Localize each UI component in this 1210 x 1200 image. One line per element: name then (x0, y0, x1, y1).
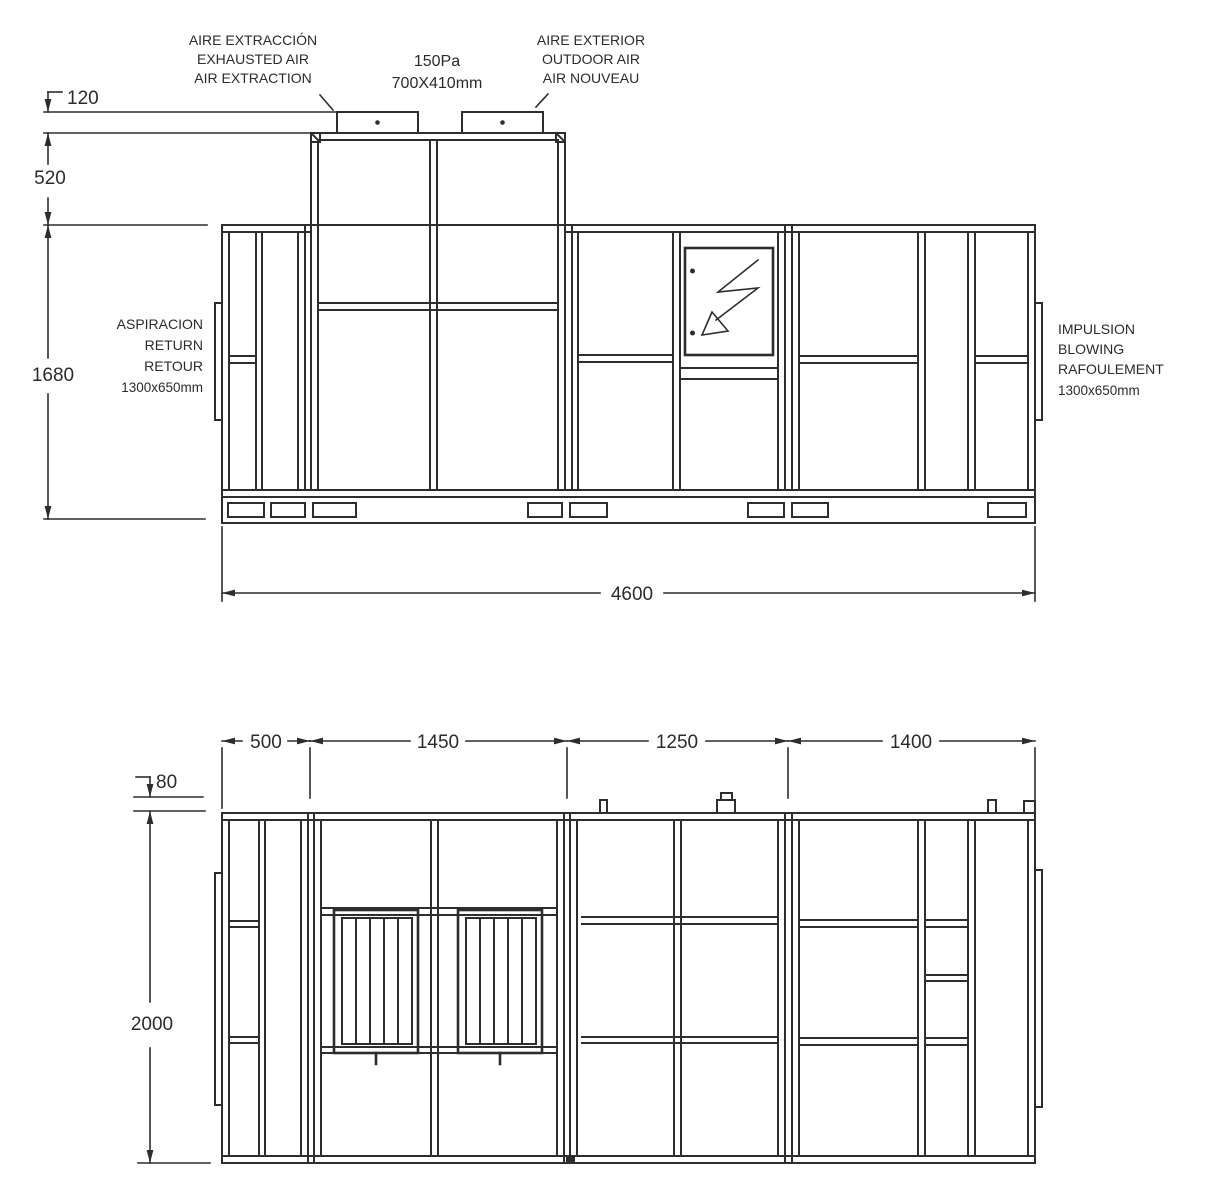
dim-500: 500 (250, 732, 282, 753)
dim-1450: 1450 (417, 732, 459, 753)
dim-1400: 1400 (890, 732, 932, 753)
annotations: AIRE EXTRACCIÓN EXHAUSTED AIR AIR EXTRAC… (32, 32, 1164, 1035)
base-frame (222, 503, 1035, 523)
unit-shell (222, 801, 1035, 1163)
return-air-flange (215, 303, 222, 420)
door-hinge-bottom (690, 331, 695, 336)
unit-body-shell (222, 225, 1035, 523)
dim-120: 120 (67, 88, 99, 109)
return-size-label: 1300x650mm (121, 380, 203, 395)
return-label-line3: RETOUR (144, 358, 203, 374)
exhaust-duct-stub (337, 112, 418, 133)
panel-rails-bottom (229, 917, 968, 1045)
pipe-stub-small-right (988, 800, 996, 813)
outdoor-label-line3: AIR NOUVEAU (543, 70, 639, 86)
dim-1680: 1680 (32, 365, 74, 386)
duct-size-label: 700X410mm (392, 75, 483, 92)
label-leader-lines (320, 94, 548, 110)
exhaust-label-line3: AIR EXTRACTION (194, 70, 311, 86)
left-access-flange (215, 873, 222, 1105)
damper-louver-left (334, 910, 418, 1064)
outdoor-duct-stub (462, 112, 543, 133)
exhaust-label-line2: EXHAUSTED AIR (197, 51, 309, 67)
supply-label-line2: BLOWING (1058, 341, 1124, 357)
bottom-view-dimension-lines (134, 741, 1035, 1163)
return-label-line1: ASPIRACION (117, 316, 203, 332)
exhaust-label-line1: AIRE EXTRACCIÓN (189, 32, 317, 48)
ahu-technical-drawing: AIRE EXTRACCIÓN EXHAUSTED AIR AIR EXTRAC… (0, 0, 1210, 1200)
pipe-stub-cap (721, 793, 732, 800)
duct-pressure-label: 150Pa (414, 53, 460, 70)
dim-4600: 4600 (611, 584, 653, 605)
outdoor-stub-center-mark (500, 120, 505, 125)
supply-size-label: 1300x650mm (1058, 383, 1140, 398)
supply-label-line1: IMPULSION (1058, 321, 1135, 337)
dim-2000: 2000 (131, 1014, 173, 1035)
door-hinge-top (690, 269, 695, 274)
drawing-canvas: AIRE EXTRACCIÓN EXHAUSTED AIR AIR EXTRAC… (0, 0, 1210, 1200)
bottom-view (134, 741, 1042, 1164)
roof-pipe-stubs (600, 793, 996, 813)
return-label-line2: RETURN (145, 337, 203, 353)
electrical-panel-door (685, 248, 773, 355)
damper-louver-right (458, 910, 542, 1064)
outdoor-label-line1: AIRE EXTERIOR (537, 32, 645, 48)
pipe-stub-small-left (600, 800, 607, 813)
lightning-bolt-icon (702, 260, 758, 335)
section-posts (298, 133, 975, 490)
right-access-flange (1035, 870, 1042, 1107)
outdoor-label-line2: OUTDOOR AIR (542, 51, 640, 67)
dim-1250: 1250 (656, 732, 698, 753)
dim-520: 520 (34, 168, 66, 189)
supply-air-flange (1035, 303, 1042, 420)
supply-label-line3: RAFOULEMENT (1058, 361, 1164, 377)
pipe-stub-capped (717, 800, 735, 813)
panel-rails (229, 232, 1028, 490)
section-posts-bottom (259, 813, 975, 1163)
dim-80: 80 (156, 772, 177, 793)
roof-plenum (311, 133, 565, 490)
base-drain-detail (566, 1156, 575, 1164)
exhaust-stub-center-mark (375, 120, 380, 125)
